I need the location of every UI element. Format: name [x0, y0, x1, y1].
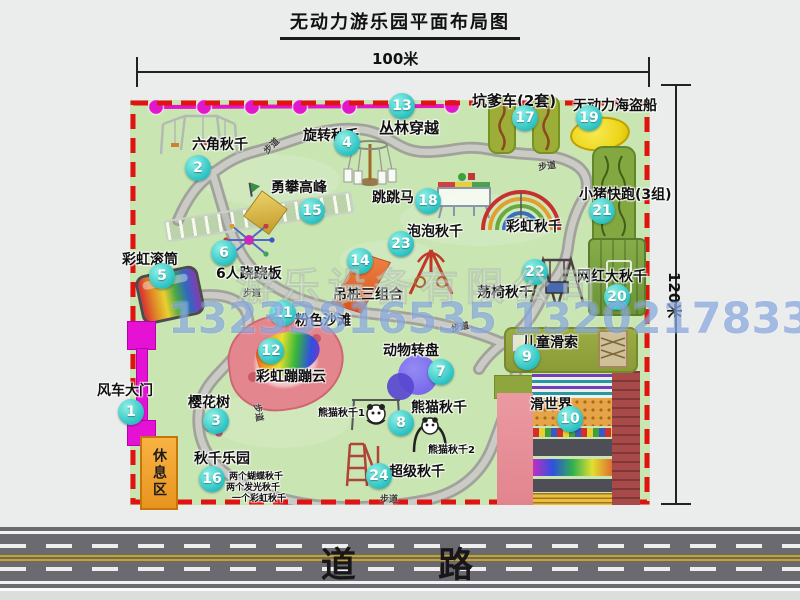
road-edge-line-top: [0, 531, 800, 534]
badge-cherry-tree: 3: [203, 408, 229, 434]
windmill-gate-top: [127, 321, 156, 350]
badge-pit-cart: 17: [512, 105, 538, 131]
badge-swing-park: 16: [199, 466, 225, 492]
top-dimension-line: [137, 71, 649, 73]
badge-animal-turntable: 7: [428, 359, 454, 385]
badge-kids-zipline: 9: [514, 344, 540, 370]
width-dimension-label: 100米: [372, 48, 418, 69]
walkway-label-2: 步道: [537, 158, 557, 173]
badge-slide-world: 10: [557, 406, 583, 432]
slide-world-icon: [494, 371, 644, 505]
label-jungle-crossing: 丛林穿越: [379, 117, 439, 138]
badge-jumping-horse: 18: [415, 188, 441, 214]
road: 道 路: [0, 527, 800, 588]
top-dimension-tick-right: [648, 57, 650, 87]
badge-jungle-crossing: 13: [389, 93, 415, 119]
right-dimension-tick-top: [661, 84, 691, 86]
badge-panda-swing: 8: [388, 410, 414, 436]
label-windmill-gate: 风车大门: [97, 380, 153, 400]
badge-pig-run: 21: [589, 198, 615, 224]
label-hex-swing: 六角秋千: [192, 134, 248, 154]
badge-pirate-ship: 19: [576, 105, 602, 131]
road-label: 道 路: [0, 537, 800, 588]
rest-area-label: 休息区: [149, 448, 169, 499]
walkway-label-6: 步道: [380, 492, 398, 505]
badge-seesaw: 6: [211, 240, 237, 266]
label-panda-swing: 熊猫秋千: [411, 397, 467, 417]
label-bubble-swing: 泡泡秋千: [407, 221, 463, 241]
badge-rotating-swing: 4: [334, 130, 360, 156]
badge-windmill-gate: 1: [118, 399, 144, 425]
label-rainbow-swing: 彩虹秋千: [506, 216, 562, 236]
badge-bubble-swing: 23: [388, 231, 414, 257]
right-dimension-tick-bottom: [661, 503, 691, 505]
label-jumping-horse: 跳跳马: [372, 187, 414, 207]
label-swing-park: 秋千乐园: [194, 448, 250, 468]
label-swing-park-item-3: 一个彩虹秋千: [232, 491, 286, 504]
badge-rainbow-roller: 5: [149, 263, 175, 289]
below-road-strip: [0, 588, 800, 600]
label-pit-cart: 坑爹车(2套): [472, 90, 556, 111]
badge-climbing-peak: 15: [299, 198, 325, 224]
top-dimension-tick-left: [136, 57, 138, 87]
label-panda-swing-2: 熊猫秋千2: [428, 441, 475, 456]
label-panda-swing-1: 熊猫秋千1: [318, 404, 365, 419]
rest-area-box: 休息区: [140, 436, 178, 510]
label-rainbow-cloud: 彩虹蹦蹦云: [256, 366, 326, 386]
page-title: 无动力游乐园平面布局图: [280, 8, 520, 40]
label-super-swing: 超级秋千: [389, 461, 445, 481]
park-layout-poster: { "title": "无动力游乐园平面布局图", "dimensions": …: [0, 0, 800, 600]
badge-hex-swing: 2: [185, 155, 211, 181]
label-climbing-peak: 勇攀高峰: [271, 177, 327, 197]
watermark-phone: 13233816535 13202178333: [168, 294, 800, 344]
badge-super-swing: 24: [366, 463, 392, 489]
